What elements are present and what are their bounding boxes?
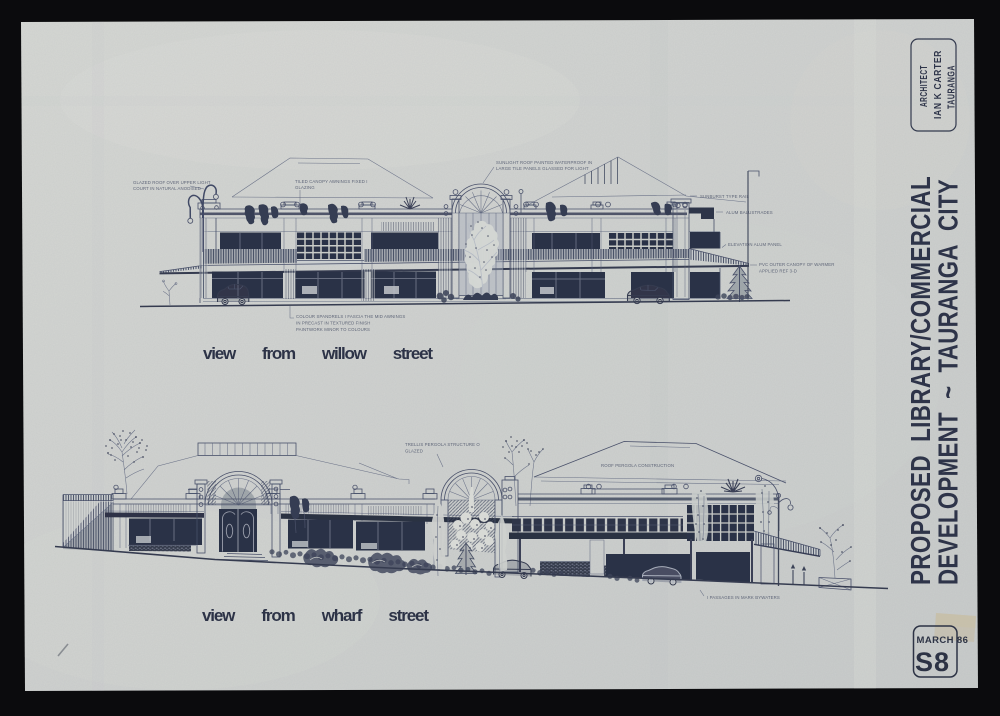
svg-text:GLAZED ROOF OVER UPPER LIGHT: GLAZED ROOF OVER UPPER LIGHT xyxy=(133,180,211,185)
svg-text:I PASSAGES IN MARK BYWATER: I PASSAGES IN MARK BYWATERS xyxy=(707,595,780,600)
svg-text:DEVELOPMENT ~ TAURANGA CITY: DEVELOPMENT ~ TAURANGA CITY xyxy=(933,179,964,585)
svg-text:TRELLIS PERGOLA STRUCTURE O: TRELLIS PERGOLA STRUCTURE O xyxy=(405,442,480,447)
svg-text:S8: S8 xyxy=(915,647,950,677)
svg-text:view from willow street: view from willow street xyxy=(203,344,435,363)
svg-text:COURT IN NATURAL ANODISED: COURT IN NATURAL ANODISED xyxy=(133,186,201,191)
svg-text:PAINTWORK MINOR TO COLOURS: PAINTWORK MINOR TO COLOURS xyxy=(296,327,370,332)
svg-text:ARCHITECT: ARCHITECT xyxy=(918,65,930,107)
svg-text:MARCH 86: MARCH 86 xyxy=(917,635,969,646)
svg-text:SUNLIGHT ROOF PAINTED WATERPR: SUNLIGHT ROOF PAINTED WATERPROOF IN xyxy=(496,160,592,165)
svg-text:TILED CANOPY AWNINGS FIXED I: TILED CANOPY AWNINGS FIXED I xyxy=(295,179,368,184)
svg-text:COLOUR SPANDRELS I FASCIA THE: COLOUR SPANDRELS I FASCIA THE MID AWNING… xyxy=(296,314,405,319)
svg-text:ELEVATION ALUM PANEL: ELEVATION ALUM PANEL xyxy=(728,242,782,247)
svg-text:GLAZING: GLAZING xyxy=(295,185,315,190)
svg-text:PVC OUTER CANOPY OF WARMER: PVC OUTER CANOPY OF WARMER xyxy=(759,262,834,267)
svg-text:SUNBURST TYPE RAIL: SUNBURST TYPE RAIL xyxy=(700,194,749,199)
svg-text:ALUM BALUSTRADES: ALUM BALUSTRADES xyxy=(726,210,773,215)
svg-text:LARGE TILE PANELS GLASSED FOR: LARGE TILE PANELS GLASSED FOR LIGHT xyxy=(496,166,589,171)
svg-text:IN PRECAST IN TEXTURED FINISH: IN PRECAST IN TEXTURED FINISH xyxy=(296,321,371,326)
svg-text:APPLIED REF 3-D: APPLIED REF 3-D xyxy=(759,269,797,274)
svg-text:PROPOSED LIBRARY/COMMERCIAL: PROPOSED LIBRARY/COMMERCIAL xyxy=(905,176,936,585)
svg-text:TAURANGA: TAURANGA xyxy=(946,65,958,109)
svg-text:ROOF PERGOLA CONSTRUCTION: ROOF PERGOLA CONSTRUCTION xyxy=(601,463,674,468)
svg-text:IAN K CARTER: IAN K CARTER xyxy=(932,50,944,119)
svg-text:view from wharf street: view from wharf street xyxy=(202,606,431,625)
svg-text:GLAZED: GLAZED xyxy=(405,449,423,454)
